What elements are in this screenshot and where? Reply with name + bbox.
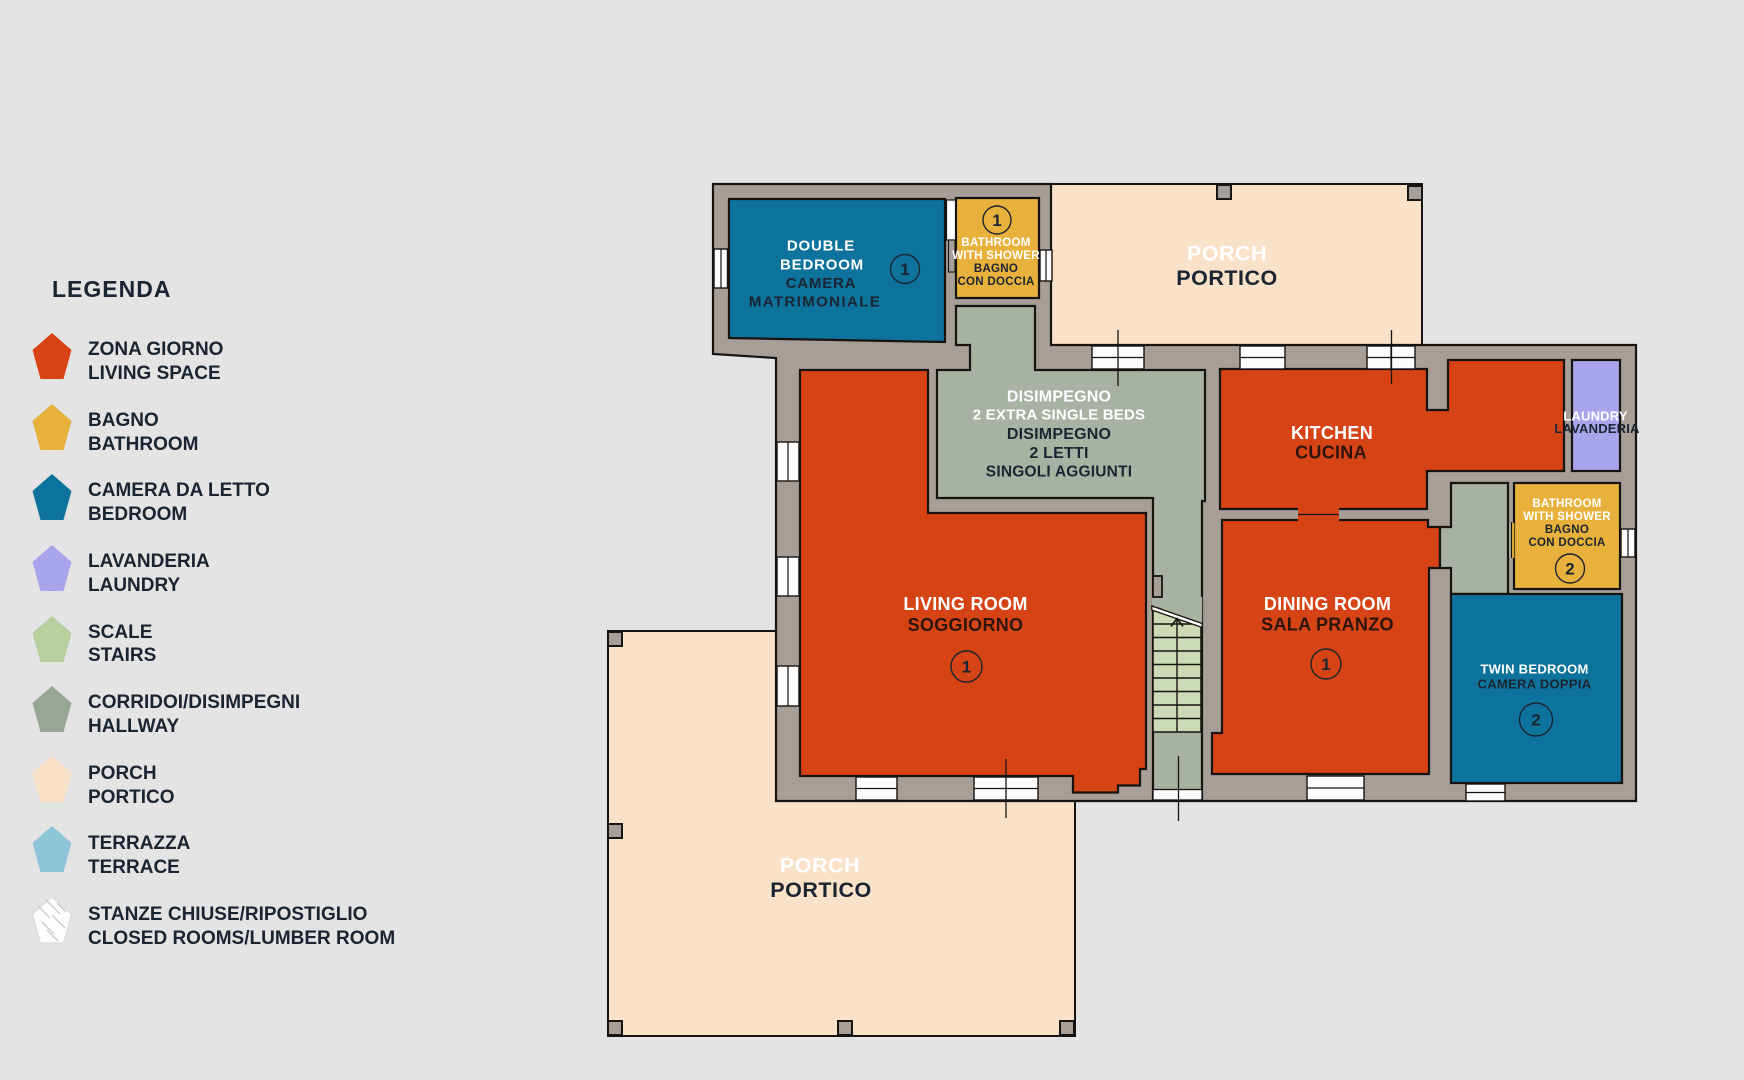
svg-text:PORTICO: PORTICO [88, 787, 175, 808]
svg-text:TERRACE: TERRACE [88, 857, 180, 878]
svg-text:SOGGIORNO: SOGGIORNO [908, 615, 1024, 635]
svg-text:DINING ROOM: DINING ROOM [1264, 594, 1391, 614]
svg-text:LAUNDRY: LAUNDRY [88, 575, 181, 596]
svg-text:2 EXTRA SINGLE BEDS: 2 EXTRA SINGLE BEDS [973, 407, 1145, 424]
svg-text:CORRIDOI/DISIMPEGNI: CORRIDOI/DISIMPEGNI [88, 692, 300, 713]
svg-text:WITH SHOWER: WITH SHOWER [1523, 511, 1611, 523]
svg-text:2: 2 [1565, 560, 1574, 579]
svg-text:1: 1 [962, 658, 971, 677]
svg-text:BATHROOM: BATHROOM [961, 237, 1030, 249]
svg-text:LIVING SPACE: LIVING SPACE [88, 363, 221, 384]
svg-text:BATHROOM: BATHROOM [88, 434, 198, 455]
svg-text:1: 1 [1321, 655, 1330, 674]
svg-text:PORCH: PORCH [1187, 242, 1267, 266]
svg-text:LIVING ROOM: LIVING ROOM [903, 594, 1027, 614]
svg-text:CAMERA: CAMERA [786, 275, 857, 292]
svg-text:WITH SHOWER: WITH SHOWER [952, 250, 1040, 262]
svg-text:KITCHEN: KITCHEN [1291, 423, 1373, 443]
svg-text:CUCINA: CUCINA [1295, 443, 1367, 463]
svg-text:STAIRS: STAIRS [88, 645, 156, 666]
svg-text:DISIMPEGNO: DISIMPEGNO [1007, 389, 1111, 406]
svg-text:LAVANDERIA: LAVANDERIA [1554, 421, 1640, 436]
svg-text:DISIMPEGNO: DISIMPEGNO [1007, 426, 1111, 443]
svg-text:CON DOCCIA: CON DOCCIA [957, 276, 1034, 288]
svg-text:PORTICO: PORTICO [1176, 266, 1277, 290]
svg-text:BAGNO: BAGNO [88, 410, 159, 431]
svg-text:CAMERA DA LETTO: CAMERA DA LETTO [88, 480, 270, 501]
svg-text:BAGNO: BAGNO [974, 263, 1018, 275]
svg-text:TERRAZZA: TERRAZZA [88, 833, 191, 854]
svg-text:ZONA GIORNO: ZONA GIORNO [88, 339, 223, 360]
svg-text:1: 1 [900, 260, 909, 279]
svg-text:SCALE: SCALE [88, 622, 152, 643]
svg-text:DOUBLE: DOUBLE [787, 238, 855, 255]
svg-text:LAVANDERIA: LAVANDERIA [88, 551, 210, 572]
svg-text:PORTICO: PORTICO [770, 878, 871, 902]
svg-text:SALA PRANZO: SALA PRANZO [1261, 615, 1394, 635]
svg-text:LEGENDA: LEGENDA [52, 276, 171, 302]
svg-text:CAMERA DOPPIA: CAMERA DOPPIA [1478, 677, 1592, 692]
svg-text:PORCH: PORCH [780, 854, 860, 878]
svg-text:STANZE CHIUSE/RIPOSTIGLIO: STANZE CHIUSE/RIPOSTIGLIO [88, 904, 367, 925]
svg-text:HALLWAY: HALLWAY [88, 716, 179, 737]
svg-text:1: 1 [992, 211, 1001, 230]
svg-text:MATRIMONIALE: MATRIMONIALE [749, 294, 881, 311]
svg-text:SINGOLI AGGIUNTI: SINGOLI AGGIUNTI [986, 464, 1132, 481]
svg-text:CON DOCCIA: CON DOCCIA [1528, 537, 1605, 549]
svg-text:BAGNO: BAGNO [1545, 524, 1589, 536]
svg-text:BATHROOM: BATHROOM [1532, 498, 1601, 510]
svg-text:BEDROOM: BEDROOM [88, 504, 187, 525]
svg-text:2: 2 [1531, 711, 1540, 730]
svg-text:2 LETTI: 2 LETTI [1029, 445, 1088, 462]
svg-text:PORCH: PORCH [88, 763, 157, 784]
svg-text:TWIN BEDROOM: TWIN BEDROOM [1480, 662, 1588, 677]
svg-text:CLOSED ROOMS/LUMBER ROOM: CLOSED ROOMS/LUMBER ROOM [88, 928, 395, 949]
svg-text:BEDROOM: BEDROOM [780, 257, 864, 274]
